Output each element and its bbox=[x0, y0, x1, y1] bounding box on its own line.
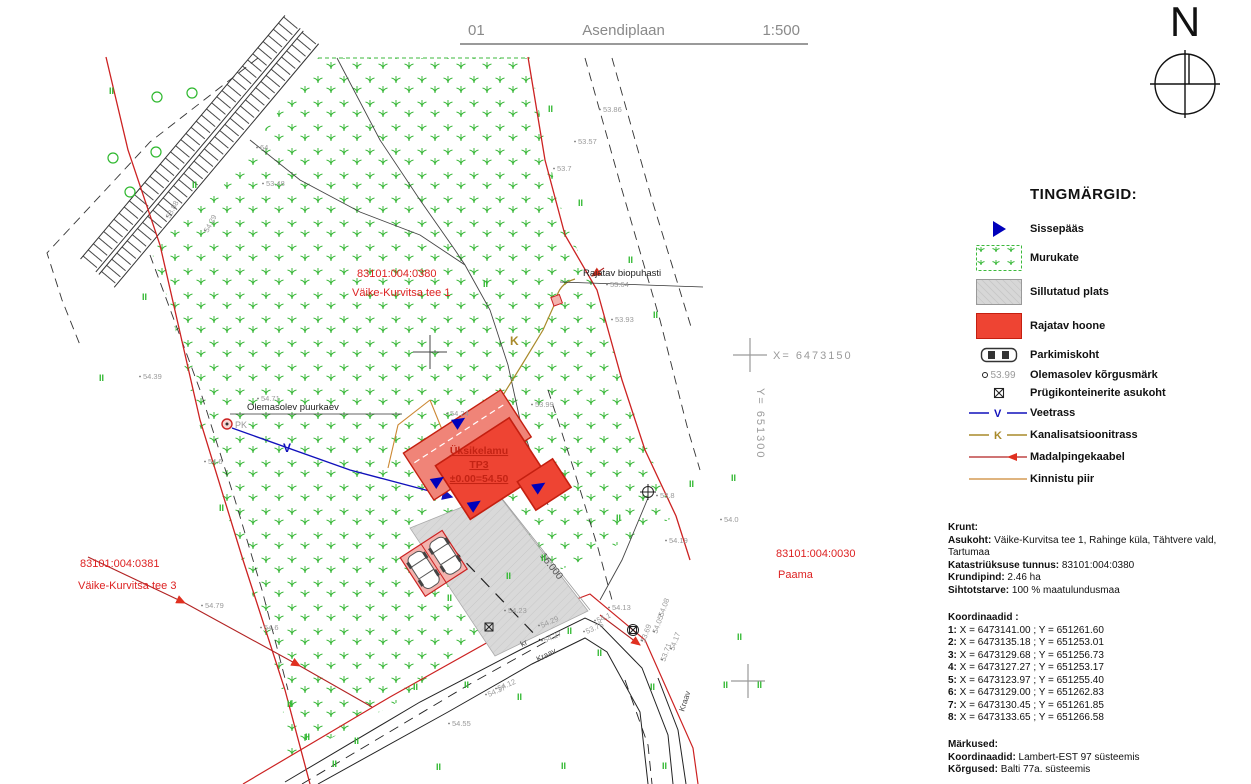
elevation-label: 53.64 bbox=[610, 280, 629, 289]
coordinate-row: 5: X = 6473123.97 ; Y = 651255.40 bbox=[948, 675, 1248, 688]
elevation-dot bbox=[257, 398, 259, 400]
elevation-label: 53.69 bbox=[638, 623, 653, 644]
elevation-label: 53.93 bbox=[615, 315, 634, 324]
krunt-row: Sihtotstarve: 100 % maatulundusmaa bbox=[948, 585, 1248, 598]
krunt-heading: Krunt: bbox=[948, 522, 978, 533]
lv-cable-icon bbox=[969, 449, 1029, 465]
elevation-dot bbox=[661, 659, 663, 661]
notes-block: Märkused: Koordinaadid: Lambert-EST 97 s… bbox=[948, 739, 1248, 777]
site-plan-drawing: K V V PK Olemasolev puurkaev 16.000 bbox=[0, 0, 940, 784]
elevation-label: 54.24 bbox=[450, 409, 469, 418]
koordinaadid-heading: Koordinaadid : bbox=[948, 612, 1019, 623]
tree-symbol: II bbox=[662, 761, 667, 771]
tree-symbol: II bbox=[332, 759, 337, 769]
tree-symbol: II bbox=[731, 473, 736, 483]
drawing-scale: 1:500 bbox=[762, 22, 800, 39]
parcel-0381-name: Väike-Kurvitsa tee 3 bbox=[78, 580, 176, 592]
parcel-0030-code: 83101:004:0030 bbox=[776, 548, 856, 560]
legend-item-murukate: Murukate bbox=[968, 245, 1250, 271]
tree-symbol: II bbox=[578, 198, 583, 208]
elevation-dot bbox=[553, 168, 555, 170]
elevation-label: 54.39 bbox=[143, 372, 162, 381]
legend-item-korgusmark: 53.99 Olemasolev kõrgusmärk bbox=[968, 369, 1250, 381]
coordinate-row: 6: X = 6473129.00 ; Y = 651262.83 bbox=[948, 687, 1248, 700]
elevation-dot bbox=[201, 605, 203, 607]
paved-swatch-icon bbox=[976, 279, 1022, 305]
notes-row: Koordinaadid: Lambert-EST 97 süsteemis bbox=[948, 752, 1248, 765]
legend-item-prugikonteinerid: Prügikonteinerite asukoht bbox=[968, 387, 1250, 399]
markused-heading: Märkused: bbox=[948, 739, 998, 750]
waste-box-icon bbox=[993, 387, 1005, 399]
tree-symbol: II bbox=[567, 626, 572, 636]
grass-swatch-icon bbox=[976, 245, 1022, 271]
tree-symbol: II bbox=[305, 732, 310, 742]
elevation-label: 54.79 bbox=[205, 601, 224, 610]
tree-symbol: II bbox=[447, 593, 452, 603]
elevation-label: 54.17 bbox=[667, 631, 682, 652]
elevation-dot bbox=[653, 631, 655, 633]
elevation-label: 54.08 bbox=[656, 597, 671, 618]
tree-symbol: II bbox=[192, 180, 197, 190]
parcel-0380-code: 83101:004:0380 bbox=[357, 268, 437, 280]
elevation-mark-icon: 53.99 bbox=[982, 370, 1015, 381]
legend-item-rajatav-hoone: Rajatav hoone bbox=[968, 313, 1250, 339]
elevation-dot bbox=[262, 183, 264, 185]
grid-y-label: Y= 651300 bbox=[754, 388, 766, 460]
elevation-dot bbox=[446, 413, 448, 415]
krunt-row: Asukoht: Väike-Kurvitsa tee 1, Rahinge k… bbox=[948, 535, 1248, 560]
elevation-dot bbox=[594, 620, 596, 622]
elevation-dot bbox=[541, 640, 543, 642]
elevation-dot bbox=[641, 640, 643, 642]
elevation-label: 54.6 bbox=[264, 623, 279, 632]
tree-symbol: II bbox=[548, 104, 553, 114]
tree-symbol: II bbox=[597, 648, 602, 658]
tree-symbol: II bbox=[219, 503, 224, 513]
coordinates-block: Koordinaadid : 1: X = 6473141.00 ; Y = 6… bbox=[948, 612, 1248, 725]
coordinate-row: 4: X = 6473127.27 ; Y = 651253.17 bbox=[948, 662, 1248, 675]
tree-symbol: II bbox=[723, 680, 728, 690]
tree-symbol: II bbox=[689, 479, 694, 489]
manhole-symbol bbox=[628, 625, 639, 636]
elevation-dot bbox=[656, 495, 658, 497]
legend-item-kanalisatsioonitrass: K Kanalisatsioonitrass bbox=[968, 427, 1250, 443]
sewer-line-icon: K bbox=[969, 427, 1029, 443]
elevation-label: 54.19 bbox=[669, 536, 688, 545]
legend-item-veetrass: V Veetrass bbox=[968, 405, 1250, 421]
biotreatment-label: Rajatav biopuhasti bbox=[583, 268, 661, 279]
water-line-icon: V bbox=[969, 405, 1029, 421]
elevation-label: 54.55 bbox=[452, 719, 471, 728]
elevation-label: 53.99 bbox=[535, 400, 554, 409]
elevation-dot bbox=[659, 614, 661, 616]
elevation-label: 53.57 bbox=[578, 137, 597, 146]
elevation-dot bbox=[606, 284, 608, 286]
svg-text:K: K bbox=[994, 430, 1002, 442]
tree-symbol: II bbox=[464, 680, 469, 690]
elevation-label: 53.48 bbox=[266, 179, 285, 188]
tree-symbol: II bbox=[142, 292, 147, 302]
entrance-arrow-icon bbox=[993, 221, 1006, 237]
elevation-dot bbox=[139, 376, 141, 378]
drawing-number: 01 bbox=[468, 22, 485, 39]
elevation-dot bbox=[504, 610, 506, 612]
well-label: Olemasolev puurkaev bbox=[247, 402, 339, 413]
north-indicator: N bbox=[1140, 0, 1230, 129]
parcel-0030-name: Paama bbox=[778, 569, 814, 581]
grid-cross-x bbox=[733, 338, 767, 372]
elevation-dot bbox=[599, 109, 601, 111]
water-letter-1: V bbox=[283, 441, 291, 455]
tree-symbol: II bbox=[757, 680, 762, 690]
krunt-row: Krundipind: 2.46 ha bbox=[948, 572, 1248, 585]
tree-symbol: II bbox=[653, 310, 658, 320]
legend-item-sillutatud: Sillutatud plats bbox=[968, 279, 1250, 305]
drawing-title: Asendiplaan bbox=[582, 22, 665, 39]
elevation-label: 54.71 bbox=[261, 394, 280, 403]
tree-symbol: II bbox=[483, 279, 488, 289]
elevation-dot bbox=[665, 540, 667, 542]
coordinate-row: 8: X = 6473133.65 ; Y = 651266.58 bbox=[948, 712, 1248, 725]
elevation-label: 53.7 bbox=[557, 164, 572, 173]
legend-item-sissepaas: Sissepääs bbox=[968, 221, 1250, 237]
elevation-dot bbox=[204, 461, 206, 463]
elevation-dot bbox=[670, 648, 672, 650]
elevation-dot bbox=[531, 404, 533, 406]
elevation-dot bbox=[538, 625, 540, 627]
parcel-0381-code: 83101:004:0381 bbox=[80, 558, 160, 570]
building-swatch-icon bbox=[976, 313, 1022, 339]
tree-symbol: II bbox=[354, 736, 359, 746]
tree-symbol: II bbox=[541, 553, 546, 563]
coordinate-row: 7: X = 6473130.45 ; Y = 651261.85 bbox=[948, 700, 1248, 713]
elevation-dot bbox=[608, 607, 610, 609]
elevation-dot bbox=[720, 519, 722, 521]
tree-symbol: II bbox=[616, 513, 621, 523]
building-label-3: ±0.00=54.50 bbox=[450, 473, 509, 485]
sewer-letter: K bbox=[510, 334, 519, 348]
ditch-label-2: Kraav bbox=[677, 690, 692, 713]
elevation-label: 54.0 bbox=[724, 515, 739, 524]
tree-symbol: II bbox=[413, 682, 418, 692]
svg-text:V: V bbox=[994, 408, 1002, 420]
legend-heading: TINGMÄRGID: bbox=[1030, 186, 1250, 203]
legend-item-madalpingekaabel: Madalpingekaabel bbox=[968, 449, 1250, 465]
site-plan-sheet: K V V PK Olemasolev puurkaev 16.000 bbox=[0, 0, 1251, 784]
elevation-dot bbox=[485, 694, 487, 696]
elevation-label: 54.6 bbox=[208, 457, 223, 466]
parking-car-icon bbox=[980, 347, 1018, 363]
building-label-1: Üksikelamu bbox=[450, 444, 508, 457]
legend-item-kinnistu-piir: Kinnistu piir bbox=[968, 471, 1250, 487]
well-code-label: PK bbox=[235, 420, 247, 430]
tree-symbol: II bbox=[436, 762, 441, 772]
legend: TINGMÄRGID: Sissepääs Murukate Sillutatu… bbox=[968, 186, 1250, 493]
title-block: 01 Asendiplaan 1:500 bbox=[460, 20, 808, 45]
elevation-dot bbox=[204, 230, 206, 232]
coordinate-row: 2: X = 6473135.18 ; Y = 651253.01 bbox=[948, 637, 1248, 650]
elevation-dot bbox=[166, 216, 168, 218]
elevation-dot bbox=[260, 627, 262, 629]
tree-symbol: II bbox=[99, 373, 104, 383]
tree-symbol: II bbox=[561, 761, 566, 771]
elevation-label: 54.23 bbox=[508, 606, 527, 615]
elevation-dot bbox=[574, 141, 576, 143]
legend-item-parkimiskoht: Parkimiskoht bbox=[968, 347, 1250, 363]
elevation-dot bbox=[256, 147, 258, 149]
plot-info-block: Krunt: Asukoht: Väike-Kurvitsa tee 1, Ra… bbox=[948, 522, 1248, 597]
elevation-dot bbox=[583, 631, 585, 633]
tree-symbol: II bbox=[650, 682, 655, 692]
notes-row: Kõrgused: Balti 77a. süsteemis bbox=[948, 764, 1248, 777]
elevation-dot bbox=[448, 723, 450, 725]
building-label-2: TP3 bbox=[469, 459, 488, 471]
tree-symbol: II bbox=[737, 632, 742, 642]
tree-symbol: II bbox=[506, 571, 511, 581]
elevation-dot bbox=[611, 319, 613, 321]
parcel-0380-name: Väike-Kurvitsa tee 1 bbox=[352, 287, 450, 299]
krunt-row: Katastriüksuse tunnus: 83101:004:0380 bbox=[948, 560, 1248, 573]
elevation-label: 53.86 bbox=[603, 105, 622, 114]
grid-x-label: X= 6473150 bbox=[773, 350, 853, 362]
elevation-label: 53.8 bbox=[660, 491, 675, 500]
elevation-label: 54.13 bbox=[612, 603, 631, 612]
tree-symbol: II bbox=[517, 692, 522, 702]
tree-symbol: II bbox=[628, 255, 633, 265]
elevation-label: 64 bbox=[260, 143, 268, 152]
tree-symbol: II bbox=[287, 699, 292, 709]
north-compass-icon bbox=[1140, 44, 1230, 124]
coordinate-row: 1: X = 6473141.00 ; Y = 651261.60 bbox=[948, 625, 1248, 638]
north-letter: N bbox=[1140, 0, 1230, 44]
property-line-icon bbox=[969, 471, 1029, 487]
tree-symbol: II bbox=[109, 86, 114, 96]
coordinate-row: 3: X = 6473129.68 ; Y = 651256.73 bbox=[948, 650, 1248, 663]
